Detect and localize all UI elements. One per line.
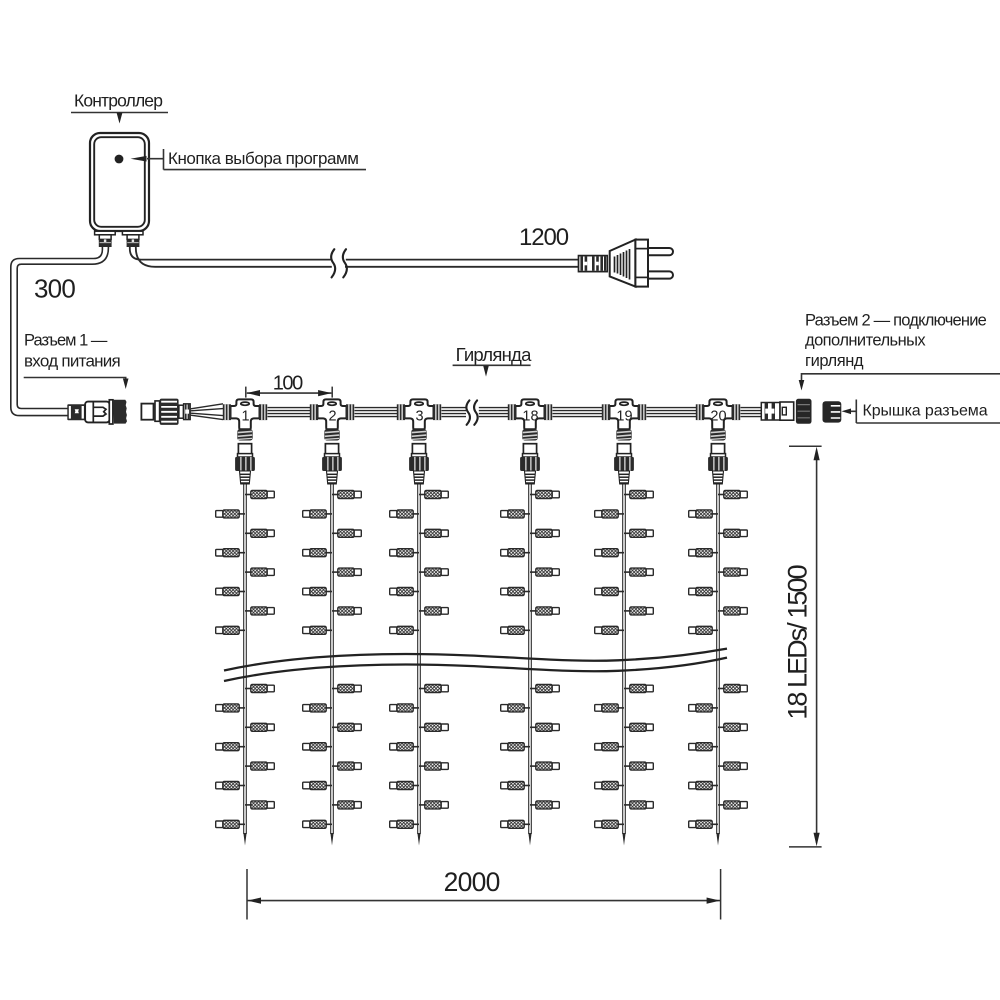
svg-text:Контроллер: Контроллер [74, 91, 162, 111]
svg-text:Разъем 1 —: Разъем 1 — [24, 332, 108, 350]
svg-text:100: 100 [273, 373, 303, 395]
svg-text:Крышка разъема: Крышка разъема [863, 403, 988, 420]
svg-text:19: 19 [616, 409, 632, 425]
svg-text:3: 3 [415, 409, 423, 425]
svg-text:гирлянд: гирлянд [805, 352, 864, 370]
svg-text:дополнительных: дополнительных [805, 332, 926, 350]
svg-text:20: 20 [710, 409, 726, 425]
svg-text:Кнопка выбора программ: Кнопка выбора программ [168, 149, 359, 168]
svg-text:вход питания: вход питания [24, 352, 121, 371]
svg-text:1: 1 [241, 409, 249, 425]
svg-text:Гирлянда: Гирлянда [456, 344, 532, 365]
svg-text:2000: 2000 [444, 867, 500, 897]
svg-text:1200: 1200 [519, 224, 569, 251]
svg-text:18: 18 [522, 409, 538, 425]
svg-text:300: 300 [34, 274, 75, 304]
svg-text:18 LEDs/ 1500: 18 LEDs/ 1500 [782, 565, 812, 719]
svg-text:2: 2 [328, 409, 336, 425]
svg-text:Разъем 2 — подключение: Разъем 2 — подключение [805, 312, 987, 330]
